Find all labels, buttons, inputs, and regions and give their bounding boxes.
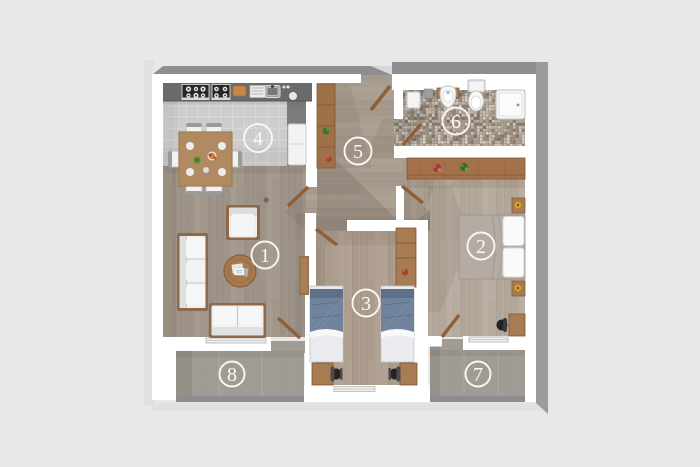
svg-text:6: 6 — [451, 111, 461, 133]
svg-text:2: 2 — [476, 236, 486, 258]
svg-text:1: 1 — [260, 245, 270, 267]
svg-text:8: 8 — [227, 364, 237, 386]
svg-text:3: 3 — [361, 293, 371, 315]
svg-text:5: 5 — [353, 141, 363, 163]
svg-text:4: 4 — [253, 128, 263, 150]
svg-text:7: 7 — [473, 364, 483, 386]
